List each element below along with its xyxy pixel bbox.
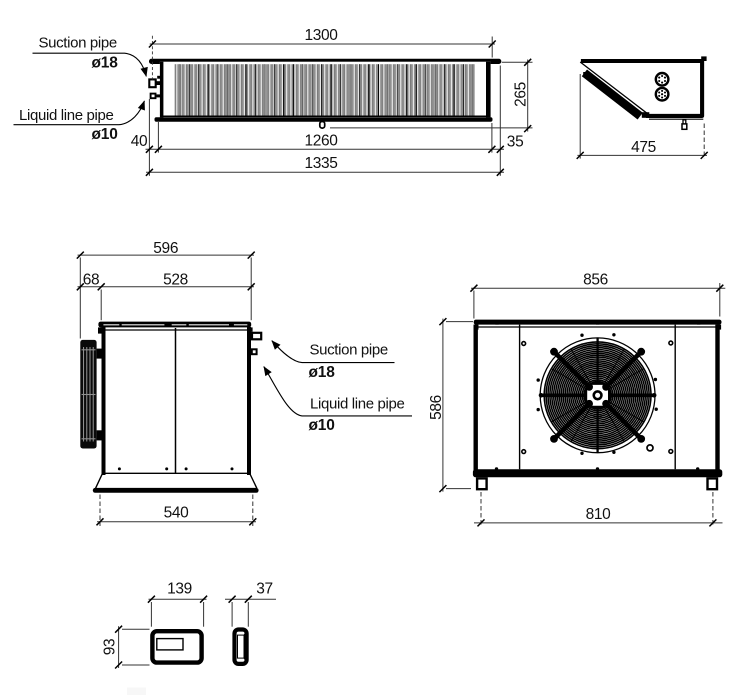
svg-text:Liquid line pipe: Liquid line pipe bbox=[19, 107, 113, 124]
svg-text:ø18: ø18 bbox=[92, 55, 119, 72]
svg-text:528: 528 bbox=[163, 272, 188, 289]
svg-text:856: 856 bbox=[583, 271, 608, 288]
svg-text:35: 35 bbox=[507, 134, 524, 151]
svg-text:93: 93 bbox=[101, 639, 118, 656]
svg-text:Liquid line pipe: Liquid line pipe bbox=[310, 395, 404, 412]
svg-text:37: 37 bbox=[256, 581, 273, 598]
svg-text:475: 475 bbox=[631, 139, 656, 156]
svg-text:Suction pipe: Suction pipe bbox=[39, 35, 117, 52]
svg-text:586: 586 bbox=[428, 395, 445, 420]
svg-text:1300: 1300 bbox=[304, 27, 338, 44]
svg-text:ø18: ø18 bbox=[309, 364, 336, 381]
svg-text:1260: 1260 bbox=[304, 132, 338, 149]
svg-text:Suction pipe: Suction pipe bbox=[310, 342, 388, 359]
svg-text:68: 68 bbox=[83, 272, 100, 289]
svg-text:139: 139 bbox=[167, 581, 192, 598]
svg-text:ø10: ø10 bbox=[92, 126, 118, 143]
svg-text:ø10: ø10 bbox=[309, 417, 335, 434]
svg-text:596: 596 bbox=[153, 240, 178, 257]
svg-text:810: 810 bbox=[586, 506, 612, 523]
svg-text:540: 540 bbox=[164, 505, 190, 522]
svg-text:1335: 1335 bbox=[304, 155, 337, 172]
svg-text:265: 265 bbox=[512, 82, 529, 107]
svg-text:40: 40 bbox=[131, 133, 148, 150]
